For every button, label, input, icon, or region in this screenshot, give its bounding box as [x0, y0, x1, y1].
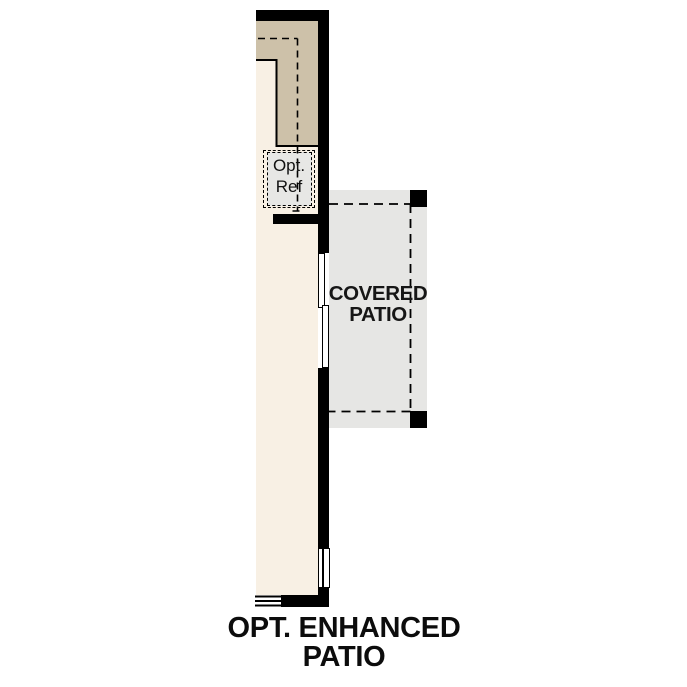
opt-ref-label: Opt. Ref [263, 155, 315, 197]
plan-title-line2: PATIO [194, 643, 494, 672]
window [318, 548, 330, 588]
patio-post-top-icon [410, 190, 427, 207]
entry-steps-icon [255, 597, 283, 606]
opt-ref-label-line1: Opt. [263, 155, 315, 176]
window-pane-divider [322, 549, 324, 587]
fridge-nook-stub-wall [273, 214, 319, 224]
plan-title: OPT. ENHANCED PATIO [194, 614, 494, 671]
opt-ref-label-line2: Ref [263, 176, 315, 197]
sliding-door-panel-outer [318, 253, 325, 308]
bottom-wall [281, 595, 329, 607]
right-wall-upper [318, 10, 329, 253]
kitchen-counter-top [256, 21, 318, 60]
covered-patio-label-line1: COVERED [327, 283, 429, 304]
patio-post-bottom-icon [410, 411, 427, 428]
covered-patio-label: COVERED PATIO [327, 283, 429, 325]
covered-patio-label-line2: PATIO [327, 304, 429, 325]
right-wall-mid [318, 368, 329, 548]
plan-title-line1: OPT. ENHANCED [194, 614, 494, 643]
floorplan-canvas: Opt. Ref COVERED PATIO OPT. ENHANCED PAT… [0, 0, 687, 687]
kitchen-counter-side [277, 60, 318, 146]
